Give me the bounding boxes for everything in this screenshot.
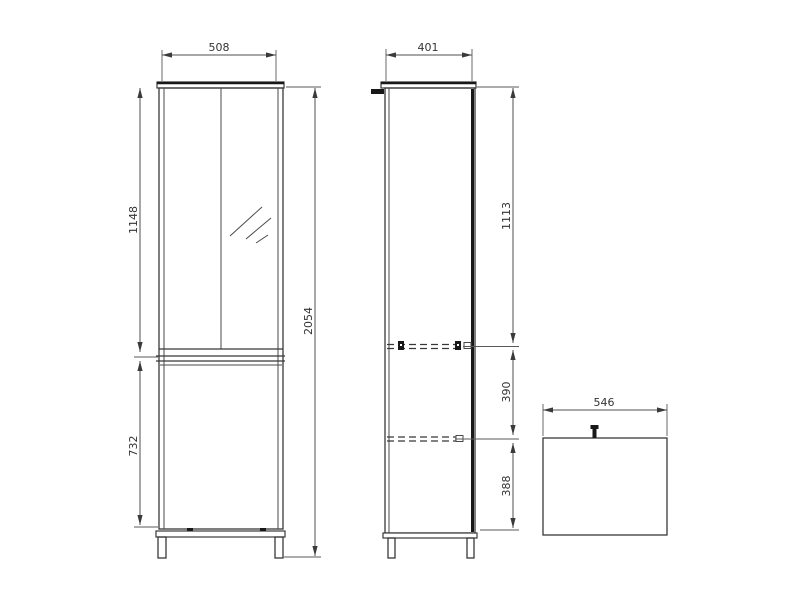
- front-divider-rail: [156, 356, 285, 365]
- side-front-leg: [388, 538, 395, 558]
- hidden-shelf-upper: [387, 341, 471, 350]
- dim-front-upper-height: 1148: [127, 88, 158, 357]
- dim-side-middle: 390: [455, 350, 519, 439]
- dim-front-lower-height: 732: [127, 361, 158, 527]
- dim-front-width: 508: [162, 41, 276, 81]
- front-view: [156, 82, 285, 558]
- front-left-leg: [158, 537, 166, 558]
- dim-label-upper-height: 1148: [127, 206, 140, 234]
- leg-mount-right: [260, 528, 266, 531]
- technical-drawing-svg: 508 1148 732 2054: [0, 0, 800, 600]
- dim-label-total-height: 2054: [302, 307, 315, 335]
- dim-side-lower: 388: [480, 443, 519, 530]
- side-carcass: [385, 88, 475, 533]
- dim-label-top-width: 546: [594, 396, 615, 409]
- shelf-bracket: [456, 436, 463, 442]
- mirror-stroke-1: [230, 207, 262, 236]
- dim-label-shelf-spacing: 390: [500, 382, 513, 403]
- mirror-stroke-3: [256, 235, 268, 243]
- hidden-shelf-lower: [387, 436, 463, 442]
- shelf-bracket: [464, 343, 471, 349]
- side-back-leg: [467, 538, 474, 558]
- dim-label-lower-section: 388: [500, 476, 513, 497]
- drawing-canvas: 508 1148 732 2054: [0, 0, 800, 600]
- side-bottom-rail: [383, 533, 477, 538]
- dim-label-front-width: 508: [209, 41, 230, 54]
- dim-front-total-height: 2054: [284, 87, 321, 557]
- dim-top-width: 546: [543, 396, 667, 436]
- leg-mount-left: [187, 528, 193, 531]
- side-view: [371, 82, 477, 558]
- front-bottom-rail: [156, 531, 285, 537]
- handle-knob: [591, 425, 599, 429]
- top-view: [543, 425, 667, 535]
- front-right-leg: [275, 537, 283, 558]
- dim-side-depth: 401: [386, 41, 472, 81]
- handle-stem: [593, 428, 597, 438]
- top-view-handle: [591, 425, 599, 438]
- dim-label-upper-section: 1113: [500, 202, 513, 230]
- shelf-pin-dot: [400, 344, 402, 346]
- mirror-glyph: [230, 207, 271, 243]
- dim-label-depth: 401: [418, 41, 439, 54]
- shelf-pin-dot: [457, 344, 459, 346]
- top-view-body: [543, 438, 667, 535]
- door-handle: [371, 89, 384, 94]
- dim-label-lower-height: 732: [127, 436, 140, 457]
